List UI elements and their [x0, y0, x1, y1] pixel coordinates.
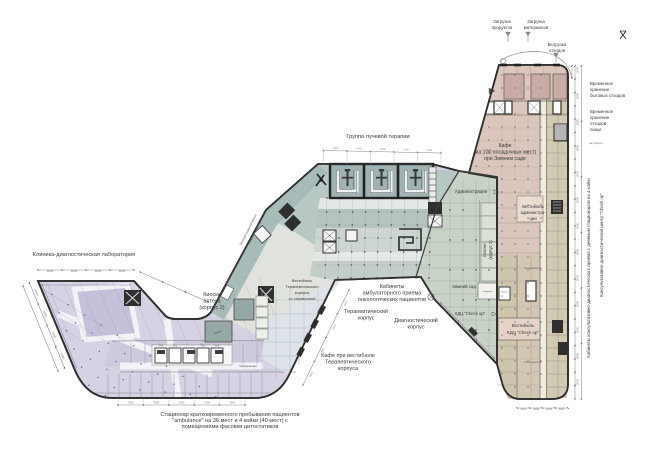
svg-text:6000: 6000	[71, 269, 78, 273]
svg-text:Гардероб: Гардероб	[483, 291, 493, 293]
svg-text:хранение: хранение	[590, 87, 610, 92]
svg-text:3000: 3000	[576, 300, 580, 307]
svg-text:(корпус 1): (корпус 1)	[488, 240, 493, 260]
svg-text:Кафе при вестибюле: Кафе при вестибюле	[321, 353, 375, 359]
svg-text:3000: 3000	[576, 352, 580, 359]
svg-text:Вестибюль: Вестибюль	[512, 323, 535, 328]
svg-text:Л-1: Л-1	[173, 344, 178, 348]
svg-text:Загрузка: Загрузка	[493, 19, 511, 24]
svg-text:Киоски: Киоски	[203, 292, 221, 298]
svg-text:Нарзит: Нарзит	[501, 292, 508, 294]
svg-text:Кафе: Кафе	[498, 143, 511, 149]
svg-text:Временное: Временное	[590, 81, 614, 86]
svg-text:"ambulance" на 36 мест и 4 кой: "ambulance" на 36 мест и 4 койки (40 мес…	[172, 417, 288, 424]
svg-text:Кабинеты консультативно-диагн: Кабинеты консультативно-диагностического…	[586, 178, 591, 358]
svg-text:отходов: отходов	[590, 121, 607, 126]
svg-text:при Зимнем саде: при Зимнем саде	[484, 156, 526, 162]
svg-text:КДЦ "Check up": КДЦ "Check up"	[507, 330, 539, 335]
svg-text:3000: 3000	[576, 118, 580, 125]
svg-text:3000: 3000	[576, 222, 580, 229]
svg-text:пищи: пищи	[590, 127, 601, 132]
svg-text:корпуса: корпуса	[338, 366, 359, 372]
svg-text:Терапевтического: Терапевтического	[325, 360, 371, 366]
svg-text:отходов: отходов	[549, 48, 566, 53]
svg-text:Загрузка: Загрузка	[527, 19, 545, 24]
svg-text:аптека: аптека	[203, 299, 221, 305]
svg-text:6000: 6000	[119, 269, 126, 273]
svg-text:3000: 3000	[576, 66, 580, 73]
svg-text:Зимний сад: Зимний сад	[452, 284, 476, 289]
svg-text:7200: 7200	[379, 147, 385, 151]
svg-text:7200: 7200	[426, 148, 432, 152]
svg-text:корпуса: корпуса	[295, 290, 310, 295]
svg-text:3000: 3000	[576, 92, 580, 99]
svg-text:3000: 3000	[559, 407, 566, 411]
svg-text:Клиника-диагностическая лабора: Клиника-диагностическая лаборатория	[33, 252, 135, 258]
svg-text:Л-2: Л-2	[201, 344, 206, 348]
svg-text:со справочной: со справочной	[289, 296, 316, 301]
svg-text:Кабинеты: Кабинеты	[380, 284, 405, 290]
svg-text:7200: 7200	[356, 146, 362, 150]
svg-text:Ожидальная: Ожидальная	[239, 364, 257, 368]
svg-text:Вестибюль: Вестибюль	[522, 204, 544, 209]
svg-text:Терапевтического: Терапевтического	[285, 284, 319, 289]
svg-text:ции: ции	[529, 216, 537, 221]
svg-text:3000: 3000	[576, 378, 580, 385]
svg-text:6000: 6000	[47, 269, 54, 273]
svg-text:3000: 3000	[576, 144, 580, 151]
svg-text:на подаче: на подаче	[589, 141, 603, 145]
svg-text:Администрация: Администрация	[455, 189, 488, 194]
svg-text:продуктов: продуктов	[492, 25, 513, 30]
svg-text:амбулаторного приема: амбулаторного приема	[363, 291, 423, 297]
svg-text:корпус: корпус	[357, 316, 374, 322]
svg-text:хранение: хранение	[590, 115, 610, 120]
svg-text:Диагностический: Диагностический	[394, 317, 438, 324]
svg-text:3000: 3000	[576, 170, 580, 177]
svg-text:Выгрузка: Выгрузка	[548, 42, 567, 47]
svg-text:бытовых отходов: бытовых отходов	[590, 93, 626, 98]
svg-text:Л-4: Л-4	[215, 344, 220, 348]
svg-text:6000: 6000	[95, 269, 102, 273]
svg-text:7500: 7500	[128, 400, 134, 404]
svg-text:3000: 3000	[576, 326, 580, 333]
svg-text:помещениями фасовки цитостатик: помещениями фасовки цитостатиков	[182, 424, 279, 430]
svg-text:администра-: администра-	[521, 210, 546, 215]
svg-text:3000: 3000	[520, 407, 527, 411]
svg-text:7500: 7500	[229, 400, 235, 404]
svg-text:7500: 7500	[153, 400, 159, 404]
svg-text:3000: 3000	[576, 248, 580, 255]
svg-text:Группа лучевой терапии: Группа лучевой терапии	[346, 133, 409, 140]
svg-text:Л-3: Л-3	[159, 344, 164, 348]
svg-text:3000: 3000	[576, 274, 580, 281]
svg-text:(на 100 посадочных мест): (на 100 посадочных мест)	[474, 150, 537, 156]
svg-text:Консультативно-диагностический: Консультативно-диагностический центр "Ch…	[599, 193, 604, 297]
svg-text:Операционная: Операционная	[524, 266, 542, 270]
svg-text:Вестибюль: Вестибюль	[292, 278, 313, 283]
svg-text:7200: 7200	[332, 146, 338, 150]
svg-text:корпус: корпус	[407, 325, 424, 331]
svg-text:(корпус 2): (корпус 2)	[199, 305, 224, 311]
svg-text:Временное: Временное	[590, 109, 614, 114]
svg-text:КДЦ "Check up": КДЦ "Check up"	[455, 311, 486, 316]
svg-text:Киоски: Киоски	[482, 243, 487, 257]
svg-text:Операционная: Операционная	[524, 360, 542, 364]
svg-text:Терапевтический: Терапевтический	[344, 308, 388, 315]
svg-text:3000: 3000	[533, 407, 540, 411]
svg-text:7500: 7500	[179, 400, 185, 404]
svg-text:3000: 3000	[576, 196, 580, 203]
svg-text:7200: 7200	[403, 147, 409, 151]
svg-text:7500: 7500	[204, 400, 210, 404]
svg-text:онкологических пациентов: онкологических пациентов	[358, 297, 426, 303]
svg-text:материалов: материалов	[524, 25, 549, 30]
svg-text:3000: 3000	[546, 407, 553, 411]
